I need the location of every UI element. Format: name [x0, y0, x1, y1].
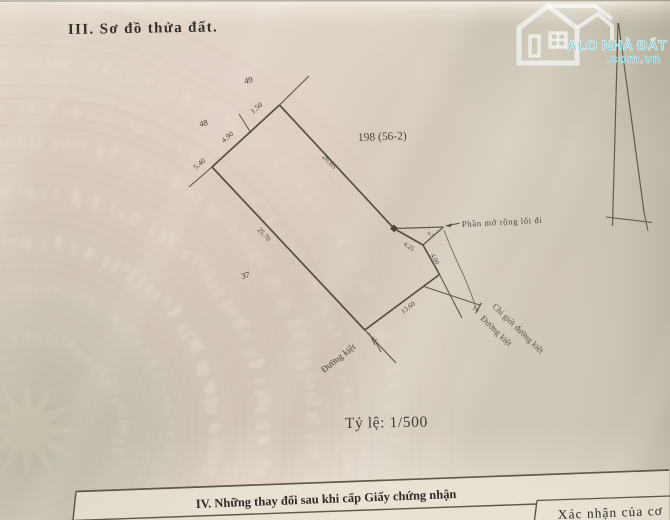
svg-text:198 (56-2): 198 (56-2) — [358, 130, 407, 144]
svg-text:26.65: 26.65 — [321, 152, 339, 171]
svg-text:Đường kiệt: Đường kiệt — [319, 341, 358, 374]
svg-text:.com.vn: .com.vn — [606, 51, 661, 66]
svg-text:48: 48 — [198, 117, 209, 129]
svg-text:37: 37 — [240, 269, 251, 281]
svg-text:Xác nhận của cơ: Xác nhận của cơ — [558, 503, 664, 520]
svg-text:0.5: 0.5 — [426, 231, 434, 239]
svg-text:Tỷ lệ: 1/500: Tỷ lệ: 1/500 — [345, 414, 428, 432]
svg-text:49: 49 — [243, 74, 254, 86]
svg-text:Phần mở rộng lối đi: Phần mở rộng lối đi — [462, 215, 543, 229]
svg-text:5.40: 5.40 — [191, 156, 207, 172]
svg-text:III. Sơ đồ thửa đất.: III. Sơ đồ thửa đất. — [68, 19, 218, 38]
svg-text:4.25: 4.25 — [402, 241, 415, 253]
svg-text:1.50: 1.50 — [248, 100, 264, 116]
svg-text:4.90: 4.90 — [219, 129, 235, 145]
